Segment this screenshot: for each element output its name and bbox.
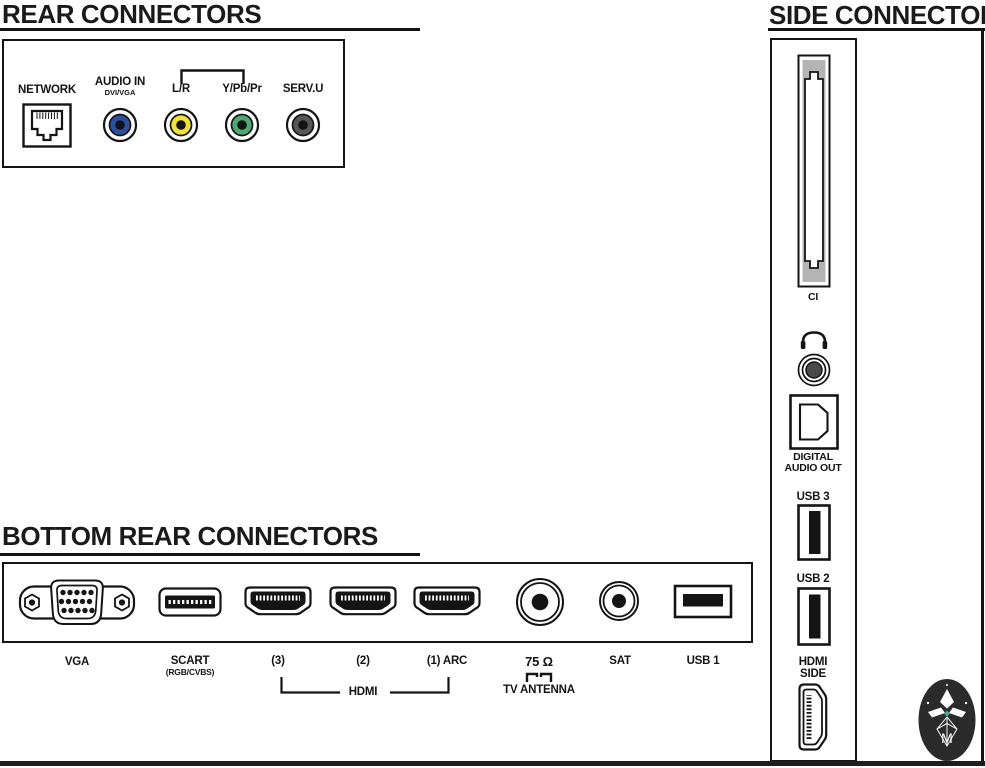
lr-jack-icon [162, 106, 200, 144]
audio-in-jack-icon [101, 106, 139, 144]
toslink-port-icon [788, 393, 840, 451]
rear-section-title: REAR CONNECTORS [2, 1, 261, 27]
usb2-label: USB 2 [797, 574, 830, 586]
bottom-title-underline [0, 553, 420, 556]
side-title-underline [768, 28, 985, 31]
digital-audio-out-label-line1: DIGITAL [793, 452, 833, 463]
scart-sublabel: (RGB/CVBS) [166, 668, 215, 677]
lr-label: L/R [172, 84, 190, 96]
serv-u-label: SERV.U [283, 84, 323, 96]
digital-audio-out-label-line2: AUDIO OUT [784, 463, 841, 474]
usb1-port-icon [673, 584, 733, 619]
hdmi-side-label-line1: HDMI [799, 657, 828, 669]
logo-monogram: M [941, 730, 953, 746]
ypbpr-label: Y/Pb/Pr [222, 84, 262, 96]
hdmi-group-label: HDMI [349, 687, 378, 699]
page-bottom-border [0, 761, 985, 766]
headphone-jack-icon [796, 352, 832, 388]
tv-antenna-port-icon [515, 577, 565, 627]
hdmi3-port-icon [244, 586, 312, 619]
scart-label: SCART [171, 656, 210, 668]
audio-in-sublabel: DVI/VGA [105, 89, 136, 97]
usb3-port-icon [796, 503, 832, 562]
manual-logo-icon: M [916, 677, 978, 763]
hdmi-side-label-line2: SIDE [800, 669, 826, 681]
side-section-title: SIDE CONNECTORS [769, 2, 985, 28]
usb3-label: USB 3 [797, 492, 830, 504]
vga-port-icon [18, 579, 136, 626]
hdmi3-label: (3) [271, 656, 284, 668]
rear-title-underline [0, 28, 420, 31]
usb2-port-icon [796, 586, 832, 647]
hdmi2-label: (2) [356, 656, 369, 668]
tv-antenna-label: TV ANTENNA [503, 685, 575, 697]
hdmi2-port-icon [329, 586, 397, 619]
hdmi1-arc-label: (1) ARC [427, 656, 467, 668]
sat-label: SAT [609, 656, 631, 668]
audio-in-label: AUDIO IN [95, 77, 145, 89]
ci-slot-icon [797, 54, 831, 288]
network-label: NETWORK [18, 85, 76, 97]
antenna-symbol-icon [525, 671, 553, 684]
usb1-label: USB 1 [687, 656, 720, 668]
serv-u-jack-icon [284, 106, 322, 144]
ci-label: CI [808, 292, 818, 303]
ypbpr-jack-icon [223, 106, 261, 144]
vga-label: VGA [65, 657, 89, 669]
bottom-section-title: BOTTOM REAR CONNECTORS [2, 523, 378, 549]
headphones-icon [799, 329, 829, 352]
sat-port-icon [598, 580, 640, 622]
rj45-network-icon [22, 103, 72, 148]
connector-diagram-page: REAR CONNECTORS NETWORK AUDIO IN DVI/VGA… [0, 0, 985, 768]
hdmi-side-port-icon [798, 683, 831, 751]
page-right-border [981, 31, 984, 761]
antenna-75ohm-label: 75 Ω [525, 655, 553, 668]
hdmi1-port-icon [413, 586, 481, 619]
scart-port-icon [158, 587, 222, 617]
